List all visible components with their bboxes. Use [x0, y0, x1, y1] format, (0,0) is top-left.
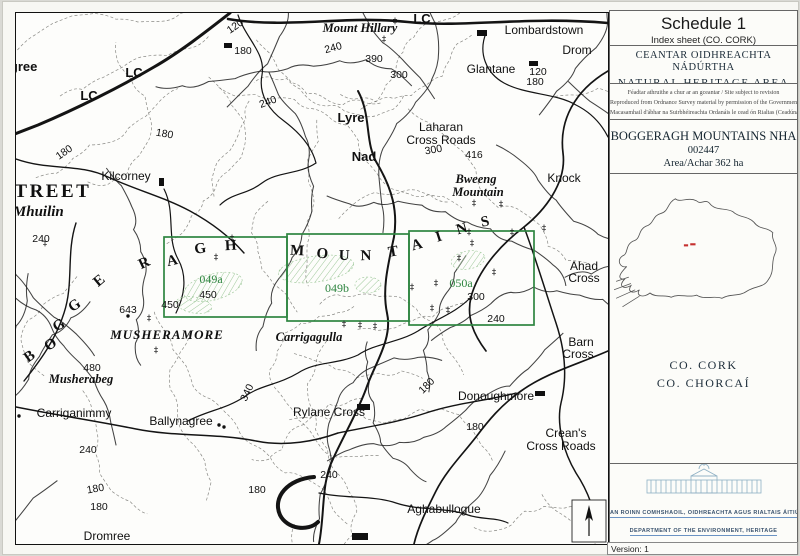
map-label: 240	[323, 40, 343, 56]
site-details-box: BOGGERAGH MOUNTAINS NHA 002447 Area/Acha…	[609, 120, 798, 174]
map-label: 416	[465, 149, 483, 161]
building	[535, 391, 545, 396]
tree-symbol: ‡	[147, 314, 152, 324]
map-label: 180	[248, 484, 266, 496]
map-label: 240	[258, 93, 279, 110]
map-label: 180	[90, 501, 108, 513]
map-label: 180	[526, 76, 544, 88]
tree-symbol: ‡	[434, 279, 439, 289]
tree-symbol: ‡	[499, 200, 504, 210]
map-label: 240	[32, 233, 50, 245]
map-dot	[17, 414, 20, 417]
tree-symbol: ‡	[410, 283, 415, 293]
map-dot	[217, 423, 220, 426]
map-label: 450	[161, 299, 179, 311]
map-label: LC	[80, 88, 98, 103]
map-label: 180	[416, 375, 437, 396]
map-label: 180	[86, 482, 105, 497]
info-panel: Schedule 1 Index sheet (CO. CORK) CEANTA…	[609, 10, 798, 543]
range-letter: N	[454, 220, 469, 238]
map-label: LC	[125, 65, 143, 80]
map-label: 180	[155, 127, 174, 142]
county-name-irish: CO. CHORCAÍ	[610, 374, 797, 392]
map-label: Sráid an Mhuilin	[16, 204, 64, 220]
map-label: Nad	[352, 149, 377, 164]
map-label: 300	[424, 143, 443, 158]
map-label: 300	[467, 291, 485, 303]
nha-area-patch	[355, 277, 381, 293]
map-label: Lyre	[338, 110, 365, 125]
note-os-permit: Reproduced from Ordnance Survey material…	[610, 98, 797, 108]
map-label: LC	[413, 13, 431, 26]
map-label: agree	[16, 59, 37, 74]
cork-county-outline	[619, 199, 776, 299]
index-box-label: 049a	[199, 272, 223, 286]
range-letter: N	[360, 248, 372, 264]
map-label: 180	[466, 421, 484, 433]
range-letter: O	[316, 246, 329, 263]
north-arrow	[572, 500, 606, 542]
map-label: Drom	[562, 43, 591, 57]
area-title-english: NATURAL HERITAGE AREA	[610, 77, 797, 84]
county-inset-map	[610, 182, 797, 337]
map-label: MILLSTREET	[16, 181, 91, 202]
index-box-label: 049b	[325, 281, 349, 295]
building	[477, 30, 487, 36]
map-label: 390	[365, 53, 383, 65]
map-label: 643	[119, 304, 137, 316]
tree-symbol: ‡	[470, 239, 475, 249]
map-label: Kilcorney	[101, 169, 150, 183]
tree-symbol: ‡	[457, 254, 462, 264]
map-label: Cross	[562, 347, 593, 361]
map-label: Ballynagree	[149, 414, 213, 428]
tree-symbol: ‡	[510, 228, 515, 238]
map-label: 340	[238, 382, 256, 403]
tree-symbol: ‡	[542, 224, 547, 234]
department-name-english-1: DEPARTMENT OF THE ENVIRONMENT, HERITAGE	[630, 528, 778, 536]
topographic-map: 049a049b050a ‡‡‡‡‡‡‡‡‡‡‡‡‡‡‡‡‡‡‡‡‡‡ agre…	[16, 13, 608, 544]
range-letter: S	[479, 213, 490, 230]
range-letter: M	[290, 243, 305, 260]
map-label: Cross Roads	[526, 439, 595, 453]
version-strip: Version: 1	[607, 542, 798, 555]
map-label: Knock	[547, 171, 581, 185]
range-letter: A	[165, 252, 179, 270]
county-name-english: CO. CORK	[610, 356, 797, 374]
map-label: 300	[390, 69, 408, 81]
schedule-title: Schedule 1	[610, 14, 797, 34]
department-name-irish: AN ROINN COMHSHAOIL, OIDHREACHTA AGUS RI…	[610, 510, 798, 518]
area-title-irish-line2: NÁDÚRTHA	[610, 62, 797, 74]
site-location-mark	[683, 244, 687, 246]
map-label: Dromree	[84, 529, 131, 543]
note-revision: Féadtar athruithe a chur ar an gceantar …	[610, 88, 797, 98]
building	[224, 43, 232, 48]
index-box-label: 050a	[449, 276, 473, 290]
map-label: Donoughmore	[458, 389, 534, 403]
map-label: Lombardstown	[505, 23, 584, 37]
tree-symbol: ‡	[492, 268, 497, 278]
note-os-permit-irish: Macasamhail d'ábhar na Suirbhéireachta O…	[610, 108, 797, 118]
map-label: Carriganimmy	[37, 406, 112, 420]
map-dot	[222, 425, 225, 428]
map-label: Rylane Cross	[293, 405, 365, 419]
tree-symbol: ‡	[358, 321, 363, 331]
building	[159, 178, 164, 186]
tree-symbol: ‡	[430, 304, 435, 314]
area-title-irish-line1: CEANTAR OIDHREACHTA	[610, 50, 797, 62]
map-label: 180	[234, 45, 252, 57]
map-label: Carrigagulla	[276, 330, 343, 344]
tree-symbol: ‡	[154, 346, 159, 356]
map-label: 450	[199, 289, 217, 301]
site-location-mark	[690, 243, 695, 245]
map-label: Laharan	[419, 120, 463, 134]
map-frame: 049a049b050a ‡‡‡‡‡‡‡‡‡‡‡‡‡‡‡‡‡‡‡‡‡‡ agre…	[15, 12, 609, 545]
tree-symbol: ‡	[446, 306, 451, 316]
map-label: 240	[320, 469, 338, 481]
range-letter: G	[50, 316, 68, 336]
scanned-page: 049a049b050a ‡‡‡‡‡‡‡‡‡‡‡‡‡‡‡‡‡‡‡‡‡‡ agre…	[2, 1, 799, 555]
map-label: Glantane	[467, 62, 516, 76]
building	[352, 533, 368, 540]
range-letter: U	[338, 248, 350, 264]
range-letter: E	[90, 272, 108, 291]
map-label: Cross	[568, 271, 599, 285]
tree-symbol: ‡	[373, 322, 378, 332]
map-label: 240	[79, 444, 97, 456]
range-letter: A	[409, 236, 424, 254]
range-letter: B	[21, 347, 38, 366]
range-letter: R	[136, 254, 153, 273]
range-letter: G	[193, 240, 208, 258]
map-label: Mountain	[451, 185, 503, 199]
nha-area-patch	[450, 248, 487, 272]
site-code: 002447	[610, 144, 797, 157]
range-letter: T	[387, 243, 400, 260]
area-titles-box: CEANTAR OIDHREACHTA NÁDÚRTHA NATURAL HER…	[609, 46, 798, 84]
schedule-box: Schedule 1 Index sheet (CO. CORK)	[609, 10, 798, 46]
index-sheet-subtitle: Index sheet (CO. CORK)	[610, 35, 797, 46]
legal-notes-box: Féadtar athruithe a chur ar an gceantar …	[609, 84, 798, 120]
map-label: Mount Hillary	[322, 21, 398, 35]
county-box: CO. CORK CO. CHORCAÍ	[609, 174, 798, 464]
map-label: Crean's	[546, 426, 587, 440]
department-logo-box: AN ROINN COMHSHAOIL, OIDHREACHTA AGUS RI…	[609, 464, 798, 543]
tree-symbol: ‡	[342, 320, 347, 330]
tree-symbol: ‡	[472, 199, 477, 209]
map-label: Musherabeg	[48, 372, 114, 386]
map-label: MUSHERAMORE	[109, 327, 224, 342]
tree-symbol: ‡	[382, 35, 387, 45]
government-building-logo	[639, 464, 769, 496]
map-label: Bweeng	[455, 172, 497, 186]
site-area: Area/Achar 362 ha	[610, 157, 797, 170]
site-name: BOGGERAGH MOUNTAINS NHA	[610, 129, 797, 144]
version-label: Version: 1	[611, 544, 649, 554]
map-label: 240	[487, 313, 505, 325]
map-label: Aghabullogue	[407, 502, 481, 516]
range-letter: H	[225, 238, 238, 255]
tree-symbol: ‡	[214, 253, 219, 263]
